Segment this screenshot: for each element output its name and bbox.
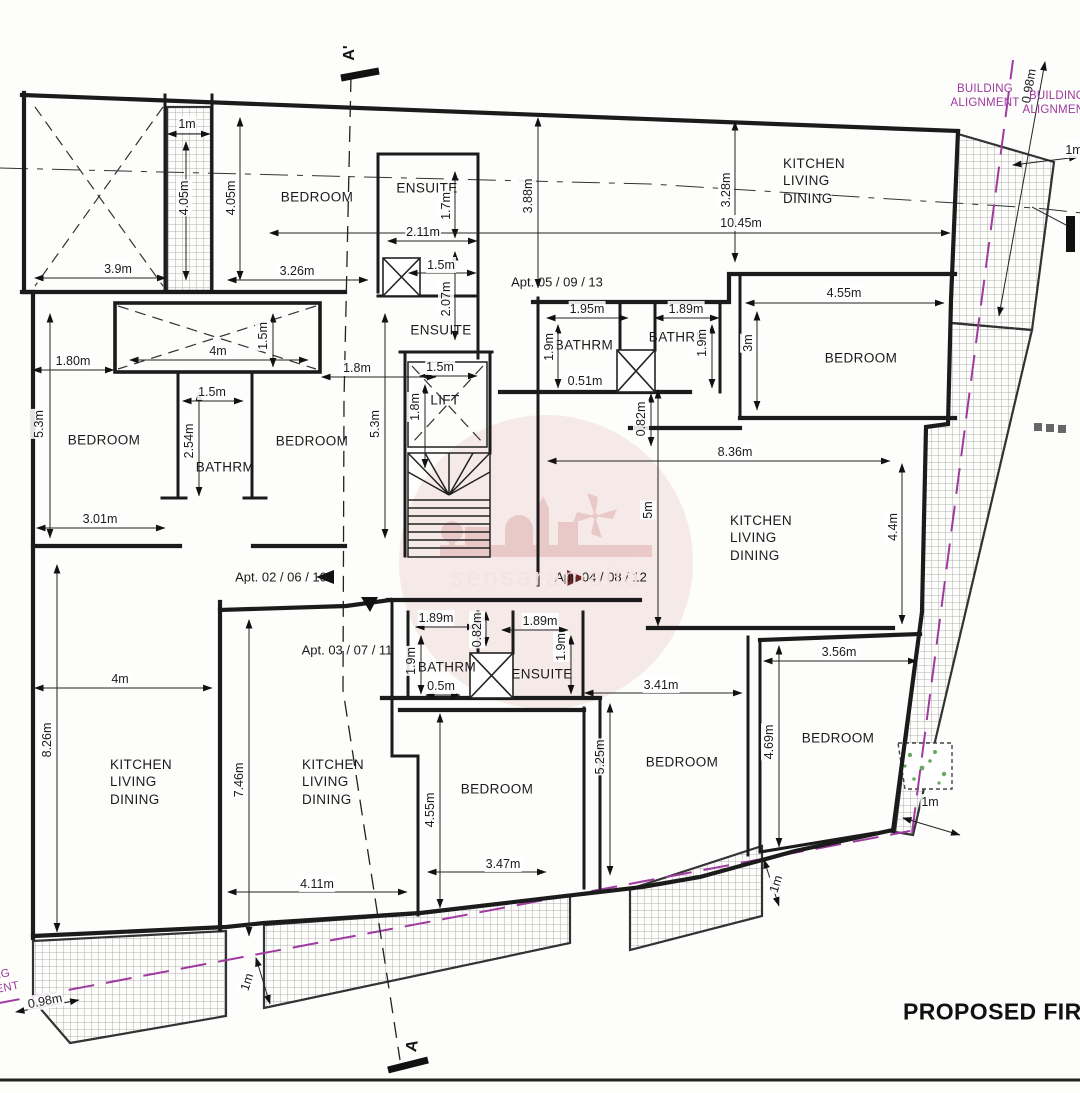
wall-top xyxy=(22,95,958,131)
dimension-label: 5.25m xyxy=(592,739,608,776)
room-label: BEDROOM xyxy=(646,753,719,770)
dimension-label: 2.11m xyxy=(405,224,441,240)
dimension-label: 5.3m xyxy=(367,409,383,439)
dimension-label: 1.5m xyxy=(425,359,455,375)
dimension-label: 4.69m xyxy=(761,724,777,761)
dimension-label: 2.54m xyxy=(181,423,197,460)
duct-shaft-2 xyxy=(617,350,655,392)
room-label: KITCHEN LIVING DINING xyxy=(302,756,364,808)
room-label: KITCHEN LIVING DINING xyxy=(110,756,172,808)
room-label: BEDROOM xyxy=(802,729,875,746)
room-label: BEDROOM xyxy=(281,188,354,205)
dimension-label: 3.47m xyxy=(485,856,522,872)
dimension-label: 3m xyxy=(740,333,756,352)
dimension-label: 4m xyxy=(110,671,129,687)
dimension-label: 1.9m xyxy=(553,632,569,662)
duct-shaft-3 xyxy=(470,653,513,698)
dimension-label: 4.55m xyxy=(826,285,863,301)
dimension-label: 4m xyxy=(208,343,227,359)
dimension-label: 10.45m xyxy=(719,215,763,231)
dimension-label: 7.46m xyxy=(231,762,247,799)
balcony-right xyxy=(630,846,762,950)
room-label: ENSUITE xyxy=(410,321,471,338)
dimension-label: 8.36m xyxy=(717,444,754,460)
dimension-label: 1.8m xyxy=(342,360,372,376)
room-label: LIFT xyxy=(430,391,459,408)
dimension-label: 5m xyxy=(640,500,656,519)
dimension-label: 4.05m xyxy=(176,180,192,217)
dimension-label: 1.5m xyxy=(426,257,456,273)
dimension-label: 3.28m xyxy=(718,172,734,209)
dimension-label: 0.82m xyxy=(469,612,485,649)
section-marker-top: A' xyxy=(341,45,359,60)
dimension-label: 1.7m xyxy=(438,191,454,221)
dimension-label: 0.82m xyxy=(633,401,649,438)
room-label: BATHRM xyxy=(555,336,613,353)
room-label: KITCHEN LIVING DINING xyxy=(783,155,845,207)
dimension-label: 1.9m xyxy=(403,646,419,676)
dimension-label: 1m xyxy=(920,794,939,810)
dimension-label: 4.4m xyxy=(885,512,901,542)
dimension-label: 1.5m xyxy=(197,384,227,400)
planting-area xyxy=(898,743,952,789)
dimension-label: 5.3m xyxy=(31,409,47,439)
dimension-label: 1m xyxy=(1064,142,1080,158)
apartment-label: Apt. 03 / 07 / 11 xyxy=(302,643,393,660)
dimension-label: 4.55m xyxy=(422,792,438,829)
dimension-label: 1.5m xyxy=(255,321,271,351)
alignment-note-label: BUILDING ALIGNMENT xyxy=(951,83,1020,111)
dimension-label: 3.01m xyxy=(82,511,119,527)
room-label: KITCHEN LIVING DINING xyxy=(730,512,792,564)
drawing-title: PROPOSED FIRST xyxy=(903,999,1080,1026)
section-mark-right xyxy=(1066,216,1075,252)
wall-left xyxy=(24,93,33,938)
dimension-label: 1.89m xyxy=(522,613,559,629)
dimension-label: 1.9m xyxy=(541,332,557,362)
section-tick-top xyxy=(341,71,379,78)
centre-line xyxy=(0,168,1080,213)
apartment-label: Apt. 02 / 06 / 10 xyxy=(235,570,327,587)
dimension-label: 0.51m xyxy=(567,373,604,389)
duct-shaft-1 xyxy=(383,258,420,296)
terrace-top-right xyxy=(951,134,1054,330)
room-label: BEDROOM xyxy=(68,431,141,448)
room-label: BATHRM xyxy=(196,458,254,475)
dimension-label: 8.26m xyxy=(39,722,55,759)
balcony-left xyxy=(33,931,226,1043)
dimension-label: 0.5m xyxy=(426,678,456,694)
room-label: BEDROOM xyxy=(825,349,898,366)
watermark-text: sensaramalta xyxy=(450,562,642,593)
room-label: ENSUITE xyxy=(511,665,572,682)
room-label: BEDROOM xyxy=(276,432,349,449)
apartment-label: Apt. 05 / 09 / 13 xyxy=(511,275,603,292)
dimension-label: 1.95m xyxy=(569,301,606,317)
dimension-label: 1.80m xyxy=(55,353,92,369)
floor-plan-sheet: BEDROOMENSUITEENSUITELIFTBATHRMBATHRMBED… xyxy=(0,0,1080,1093)
room-label: BEDROOM xyxy=(461,780,534,797)
room-label: BATHRM xyxy=(418,658,476,675)
dimension-label: 3.88m xyxy=(520,178,536,215)
dimension-label: 3.26m xyxy=(279,263,316,279)
dimension-label: 4.11m xyxy=(299,876,335,892)
dimension-label: 1.8m xyxy=(407,392,423,422)
dimension-label: 3.41m xyxy=(643,677,680,693)
alignment-note-label: BUILDING ALIGNMENT xyxy=(1023,90,1080,118)
dimension-label: 4.05m xyxy=(223,180,239,217)
section-tick-bottom xyxy=(388,1060,428,1070)
dimension-label: 1.89m xyxy=(418,610,455,626)
dimension-label: 1.9m xyxy=(694,328,710,358)
dimension-label: 1m xyxy=(177,116,196,132)
dimension-label: 3.9m xyxy=(103,261,133,277)
dimension-label: 3.56m xyxy=(821,644,858,660)
dimension-label: 2.07m xyxy=(438,281,454,318)
floor-plan-drawing xyxy=(0,0,1080,1093)
dimension-label: 1.89m xyxy=(668,301,705,317)
